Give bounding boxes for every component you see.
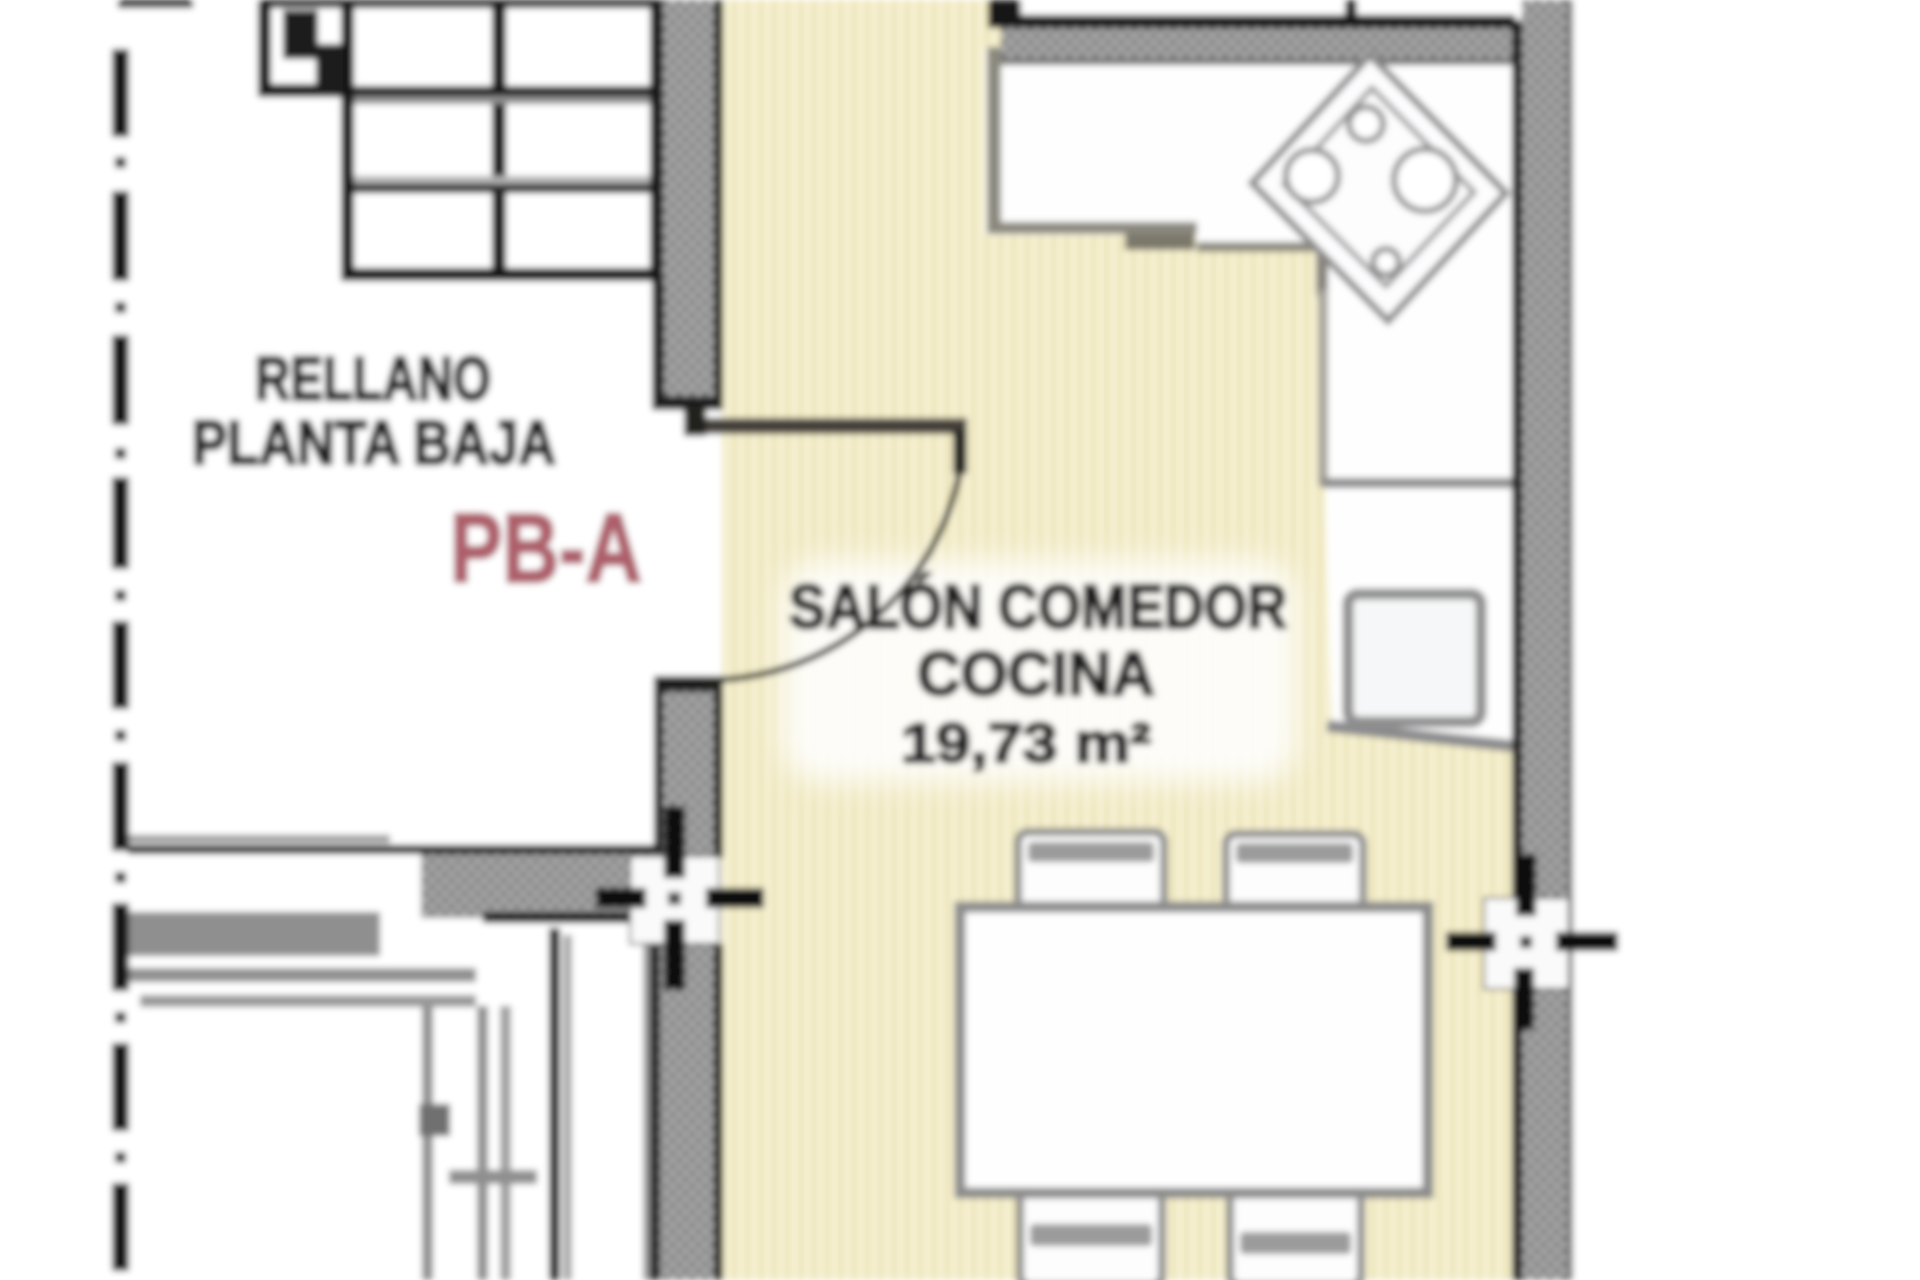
svg-text:PB-A: PB-A — [450, 493, 642, 603]
svg-text:SALÓN COMEDOR: SALÓN COMEDOR — [789, 573, 1287, 642]
svg-text:PLANTA BAJA: PLANTA BAJA — [192, 409, 556, 478]
svg-text:COCINA: COCINA — [917, 640, 1155, 709]
svg-text:19,73 m²: 19,73 m² — [901, 711, 1151, 774]
svg-text:RELLANO: RELLANO — [255, 345, 491, 414]
